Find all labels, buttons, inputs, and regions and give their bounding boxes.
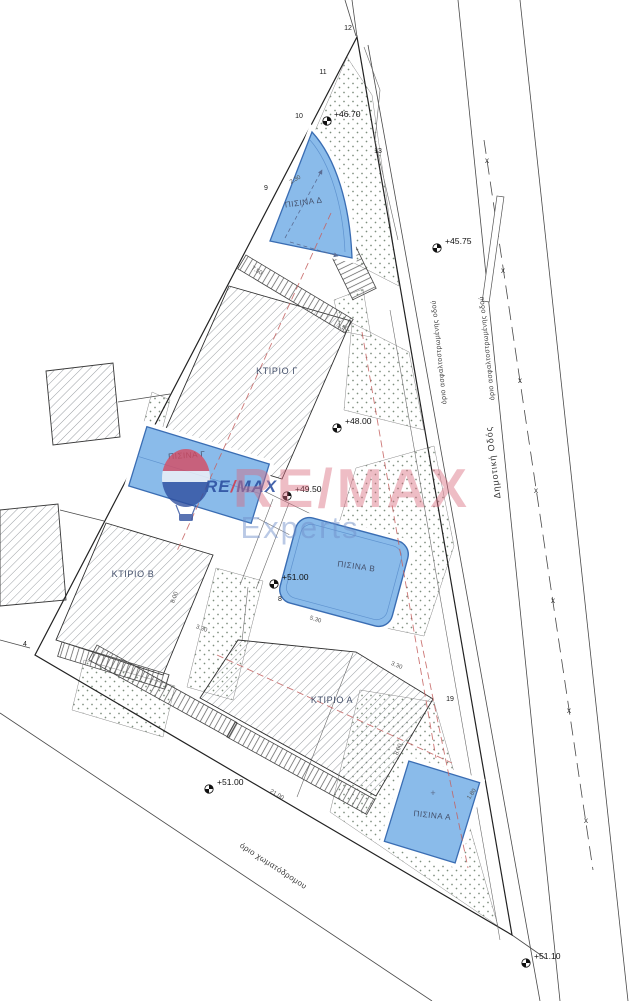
municipal-road-label: Δημοτική Οδός: [484, 426, 503, 500]
fence-x-mark: x: [518, 376, 522, 385]
benchmark-symbol-icon: [433, 244, 441, 252]
fence-x-mark: x: [534, 486, 538, 495]
vertex-number: 13: [374, 148, 382, 155]
building-alpha-label: ΚΤΙΡΙΟ Α: [311, 695, 353, 705]
building-beta-label: ΚΤΙΡΙΟ Β: [112, 569, 155, 579]
site-plan-page: ΚΤΙΡΙΟ Γ ΚΤΙΡΙΟ Β ΚΤΙΡΙΟ Α ΠΙΣΙΝΑ Δ ΠΙΣΙ…: [0, 0, 640, 1001]
vertex-number: 19: [446, 696, 454, 703]
elevation-label: +48.00: [345, 416, 372, 426]
fence-x-mark: x: [501, 266, 505, 275]
benchmark-symbol-icon: [205, 785, 213, 793]
curb-strip: [482, 196, 504, 302]
fence-x-mark: x: [551, 596, 555, 605]
dimension-label: 5.30: [309, 615, 323, 624]
road-far-edge-line: [520, 0, 628, 1001]
vertex-number: 10: [295, 113, 303, 120]
vertex-number: 12: [344, 25, 352, 32]
neighbour-building-2: [0, 504, 66, 606]
elevation-label: +51.10: [534, 951, 561, 961]
neighbour-building-1: [46, 363, 120, 445]
vertex-number: 11: [319, 69, 326, 76]
remax-experts-subbrand: Experts: [240, 510, 359, 545]
parcel-line: [60, 510, 104, 521]
vertex-number: 9: [264, 185, 268, 192]
benchmark-symbol-icon: [333, 424, 341, 432]
benchmark-symbol-icon: [270, 580, 278, 588]
fence-x-mark: x: [584, 816, 588, 825]
building-gamma-label: ΚΤΙΡΙΟ Γ: [256, 366, 298, 376]
elevation-label: +51.00: [217, 777, 244, 787]
pool-alpha-cross: +: [430, 788, 435, 798]
elevation-label: +46.70: [334, 109, 361, 119]
vertex-number: 4: [23, 641, 27, 648]
dirt-road-label: όριο χωματόδρομου: [238, 841, 309, 891]
site-plan-drawing: ΚΤΙΡΙΟ Γ ΚΤΙΡΙΟ Β ΚΤΙΡΙΟ Α ΠΙΣΙΝΑ Δ ΠΙΣΙ…: [0, 0, 640, 1001]
benchmark-symbol-icon: [323, 117, 331, 125]
stipple-area: [344, 323, 424, 430]
vertex-number: 8: [278, 596, 282, 603]
asphalt-edge-label-1: όριο ασφαλτοστρωμένης οδού: [430, 300, 449, 405]
fence-x-mark: x: [567, 706, 571, 715]
fence-line: [484, 140, 593, 870]
benchmark-symbol-icon: [522, 959, 530, 967]
elevation-label: +51.00: [282, 572, 309, 582]
fence-x-mark: x: [485, 156, 489, 165]
dimension-label: 3.30: [390, 661, 404, 671]
elevation-label: +45.75: [445, 236, 472, 246]
